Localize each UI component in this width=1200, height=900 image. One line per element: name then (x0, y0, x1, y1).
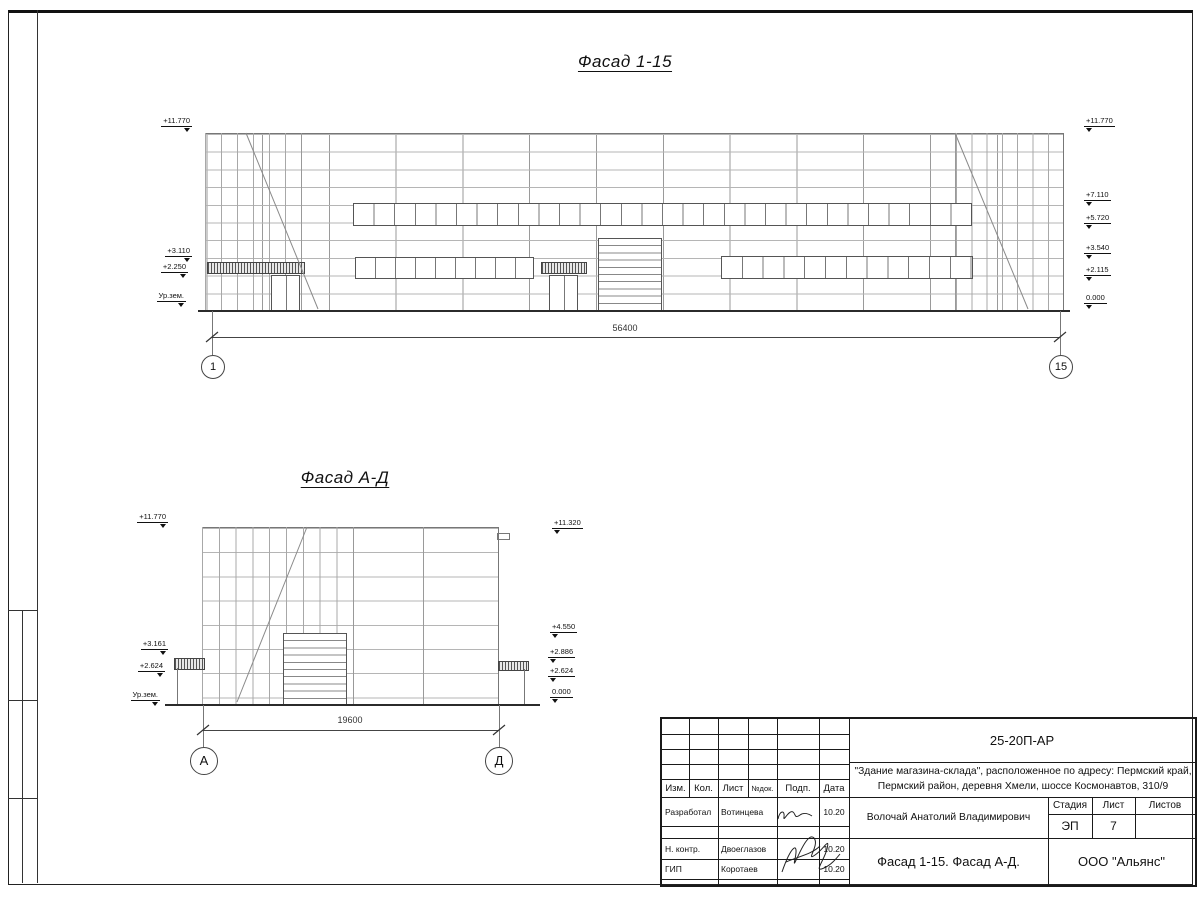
level-triangle-icon (552, 699, 558, 703)
elevation-mark: +3.161 (128, 640, 168, 655)
level-triangle-icon (1086, 255, 1092, 259)
tb-sheets-label: Листов (1135, 797, 1195, 814)
dimension-line (203, 730, 499, 731)
tb-row-role: Разработал (662, 797, 721, 826)
tb-project-line2: Пермский район, деревня Хмели, шоссе Кос… (851, 779, 1195, 794)
witness-line (203, 705, 204, 747)
facade1-upper-window-ribbon (353, 203, 972, 226)
axis-bubble-15: 15 (1049, 355, 1073, 379)
level-triangle-icon (184, 128, 190, 132)
elevation-mark: +7.110 (1084, 191, 1128, 206)
level-triangle-icon (1086, 225, 1092, 229)
facade2-roller-door (283, 633, 347, 706)
dimension-value: 56400 (585, 323, 665, 333)
elevation-mark: Ур.зем. (146, 292, 186, 307)
tb-row-role: Н. контр. (662, 838, 721, 859)
elevation-mark: +2.624 (125, 662, 165, 677)
tb-stage-label: Стадия (1048, 797, 1092, 814)
tb-header-izm: Изм. (662, 779, 689, 797)
level-triangle-icon (1086, 277, 1092, 281)
tb-header-kol: Кол. (689, 779, 718, 797)
elevation-mark: +2.115 (1084, 266, 1128, 281)
stamp-cell-inv (9, 799, 22, 882)
facade1-title: Фасад 1-15 (520, 52, 730, 72)
tb-doc-number: 25-20П-АР (849, 719, 1195, 762)
tb-row-name: Двоеглазов (718, 838, 780, 859)
level-triangle-icon (160, 524, 166, 528)
witness-line (1060, 311, 1061, 355)
elevation-mark: 0.000 (1084, 294, 1128, 309)
tb-project-line1: "Здание магазина-склада", расположенное … (851, 764, 1195, 779)
tb-sheet-title: Фасад 1-15. Фасад А-Д. (849, 838, 1048, 885)
level-triangle-icon (550, 678, 556, 682)
frame-inner-left-line (37, 10, 38, 883)
facade1-lower-right-window-ribbon (721, 256, 973, 279)
facade1-left-canopy (207, 262, 305, 274)
tb-architect: Волочай Анатолий Владимирович (849, 797, 1048, 838)
dimension-value: 19600 (310, 715, 390, 725)
elevation-mark: +11.770 (124, 513, 168, 528)
elevation-mark: +11.770 (1084, 117, 1128, 132)
axis-bubble-a: А (190, 747, 218, 775)
door-leaf-divider (564, 276, 565, 311)
tb-sheets-value (1135, 814, 1195, 838)
tb-row-date: 10.20 (819, 838, 849, 859)
stamp-label (9, 611, 22, 699)
dimension-line (212, 337, 1060, 338)
tb-sheet-value: 7 (1092, 814, 1135, 838)
elevation-mark: +2.886 (548, 648, 592, 663)
facade2-roof-pipe (497, 533, 510, 540)
tb-row-role: ГИП (662, 859, 721, 879)
level-triangle-icon (1086, 305, 1092, 309)
level-triangle-icon (550, 659, 556, 663)
facade2-left-canopy-post (177, 668, 178, 704)
elevation-mark: +4.550 (550, 623, 594, 638)
elevation-mark: +11.320 (552, 519, 596, 534)
facade2-title: Фасад А-Д (240, 468, 450, 488)
axis-bubble-1: 1 (201, 355, 225, 379)
tb-row-name: Коротаев (718, 859, 780, 879)
tb-company: ООО "Альянс" (1048, 838, 1195, 885)
level-triangle-icon (152, 702, 158, 706)
tb-header-podp: Подп. (777, 779, 819, 797)
elevation-mark: +5.720 (1084, 214, 1128, 229)
stamp-strip-line (22, 610, 23, 883)
title-block: Изм. Кол. Лист №док. Подп. Дата Разработ… (660, 717, 1197, 887)
witness-line (499, 705, 500, 747)
level-triangle-icon (554, 530, 560, 534)
stamp-label (9, 701, 22, 797)
facade1-ground-line (198, 310, 1070, 312)
level-triangle-icon (178, 303, 184, 307)
drawing-sheet: Фасад 1-15 +11.770 +3.110 +2.250 Ур.зем.… (0, 0, 1200, 900)
elevation-mark: 0.000 (550, 688, 594, 703)
axis-bubble-d: Д (485, 747, 513, 775)
tb-row-date: 10.20 (819, 859, 849, 879)
elevation-mark: +11.770 (152, 117, 192, 132)
facade2-ground-line (165, 704, 540, 706)
facade1-center-entrance-door (549, 275, 578, 312)
facade2-left-canopy (174, 658, 205, 670)
door-leaf-divider (286, 276, 287, 311)
elevation-mark: Ур.зем. (120, 691, 160, 706)
facade1-lower-left-window-ribbon (355, 257, 534, 279)
tb-header-data: Дата (819, 779, 849, 797)
stamp-cell-vzam (9, 611, 22, 699)
facade1-left-entrance-door (271, 275, 300, 312)
facade2-right-canopy-post (524, 669, 525, 704)
tb-stage-value: ЭП (1048, 814, 1092, 838)
tb-sheet-label: Лист (1092, 797, 1135, 814)
elevation-mark: +3.110 (152, 247, 192, 262)
witness-line (212, 311, 213, 355)
tb-row-date: 10.20 (819, 797, 849, 826)
level-triangle-icon (157, 673, 163, 677)
elevation-mark: +3.540 (1084, 244, 1128, 259)
facade1-center-canopy (541, 262, 587, 274)
tb-header-list: Лист (718, 779, 748, 797)
elevation-mark: +2.624 (548, 667, 592, 682)
stamp-label (9, 799, 22, 882)
facade2-column-line (423, 527, 424, 704)
level-triangle-icon (1086, 128, 1092, 132)
level-triangle-icon (180, 274, 186, 278)
level-triangle-icon (160, 651, 166, 655)
level-triangle-icon (1086, 202, 1092, 206)
facade1-roller-door (598, 238, 662, 311)
stamp-cell-podp (9, 701, 22, 797)
level-triangle-icon (552, 634, 558, 638)
elevation-mark: +2.250 (148, 263, 188, 278)
tb-header-ndok: №док. (748, 779, 777, 797)
tb-row-name: Вотинцева (718, 797, 780, 826)
